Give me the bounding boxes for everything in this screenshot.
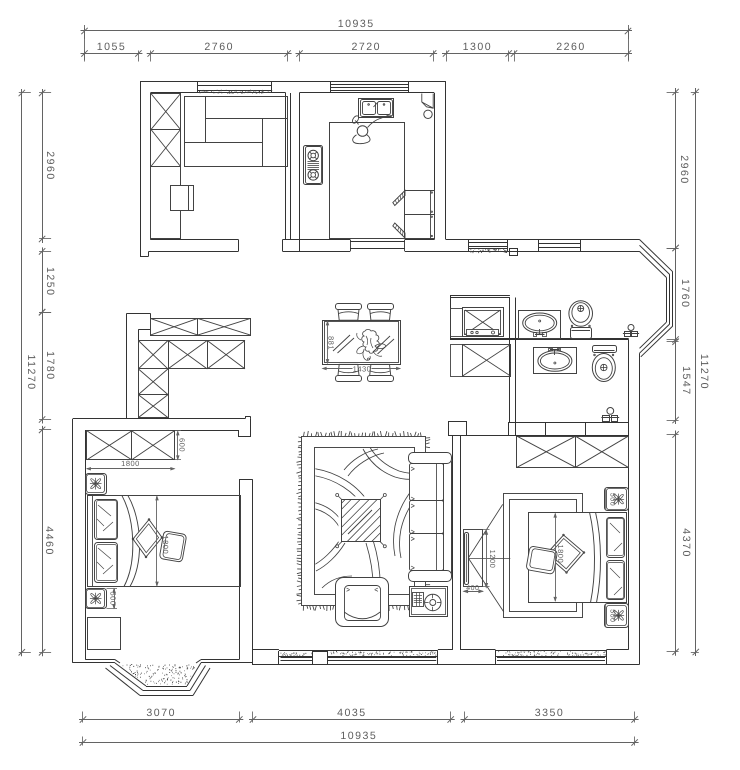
svg-text:400: 400: [466, 585, 479, 592]
svg-text:1800: 1800: [556, 544, 565, 563]
svg-text:2760: 2760: [204, 41, 234, 53]
svg-text:2960: 2960: [44, 151, 56, 181]
svg-text:1800: 1800: [121, 459, 140, 468]
svg-text:3350: 3350: [535, 707, 565, 719]
svg-text:4370: 4370: [680, 528, 692, 558]
svg-text:10935: 10935: [338, 18, 375, 30]
svg-text:1800: 1800: [161, 535, 170, 554]
svg-text:1760: 1760: [679, 279, 691, 309]
svg-text:1250: 1250: [44, 267, 56, 297]
svg-text:2960: 2960: [678, 155, 690, 185]
svg-text:881: 881: [327, 336, 336, 350]
svg-text:1055: 1055: [97, 41, 127, 53]
svg-text:1547: 1547: [680, 366, 692, 396]
svg-text:1300: 1300: [463, 41, 493, 53]
svg-text:1200: 1200: [488, 550, 497, 569]
svg-text:500: 500: [609, 493, 616, 506]
svg-text:11270: 11270: [25, 355, 37, 391]
svg-text:1780: 1780: [44, 351, 56, 381]
svg-text:10935: 10935: [340, 730, 377, 742]
svg-text:2720: 2720: [352, 41, 382, 53]
svg-text:11270: 11270: [698, 354, 710, 390]
svg-text:2260: 2260: [556, 41, 586, 53]
svg-text:4460: 4460: [43, 526, 55, 556]
svg-text:500: 500: [609, 609, 616, 622]
svg-text:4035: 4035: [337, 707, 367, 719]
svg-text:500: 500: [109, 591, 118, 605]
svg-text:3070: 3070: [146, 707, 176, 719]
svg-text:600: 600: [177, 438, 186, 452]
svg-text:1430: 1430: [353, 365, 372, 374]
